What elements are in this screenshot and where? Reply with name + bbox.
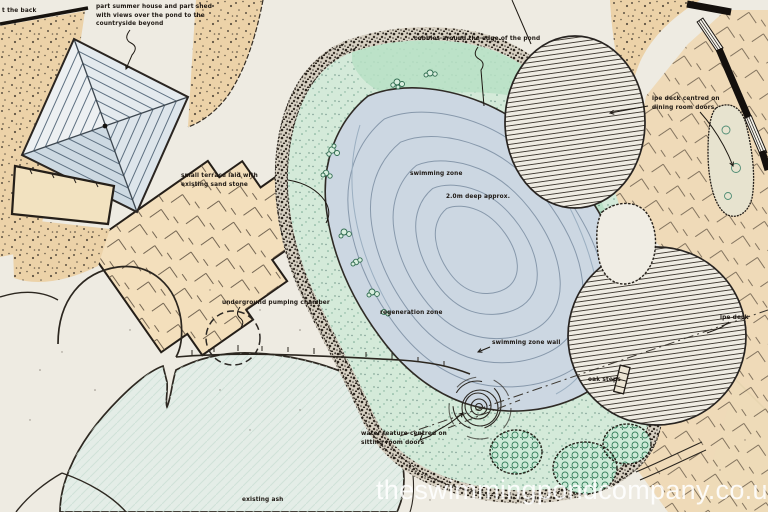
site-plan-drawing: t the back part summer house and part sh…	[0, 0, 768, 512]
label-summer-house: part summer house and part shed with vie…	[96, 3, 212, 29]
label-ipe-deck-dining: ipe deck centred on dining room doors	[652, 95, 720, 112]
label-water-feature: water feature centred on sitting room do…	[361, 430, 447, 447]
label-depth: 2.0m deep approx.	[446, 193, 510, 202]
label-pumping-chamber: underground pumping chamber	[222, 299, 330, 308]
label-regeneration-zone: regeneration zone	[380, 309, 443, 318]
upper-ipe-deck	[505, 36, 645, 208]
label-the-back: t the back	[2, 7, 37, 16]
label-swimming-zone: swimming zone	[410, 170, 463, 179]
watermark: theswimmingpondcompany.co.uk	[376, 477, 768, 504]
label-existing-ash: existing ash	[242, 496, 283, 505]
label-oak-steps: oak steps	[588, 376, 621, 385]
label-terrace: small terrace laid with existing sand st…	[181, 172, 258, 189]
label-ipe-deck: ipe deck	[720, 314, 749, 323]
label-cobbles: cobbles around the edge of the pond	[414, 35, 540, 44]
label-swimming-zone-wall: swimming zone wall	[492, 339, 561, 348]
lower-ipe-deck	[568, 247, 746, 425]
